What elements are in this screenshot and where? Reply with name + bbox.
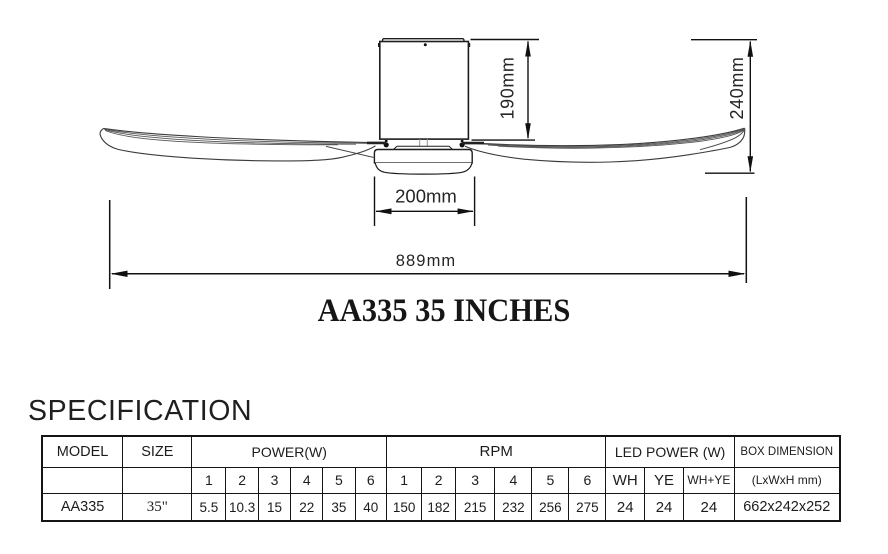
svg-text:889mm: 889mm	[396, 252, 457, 270]
svg-text:200mm: 200mm	[395, 186, 457, 207]
svg-text:190mm: 190mm	[498, 56, 518, 119]
svg-text:240mm: 240mm	[727, 56, 747, 119]
